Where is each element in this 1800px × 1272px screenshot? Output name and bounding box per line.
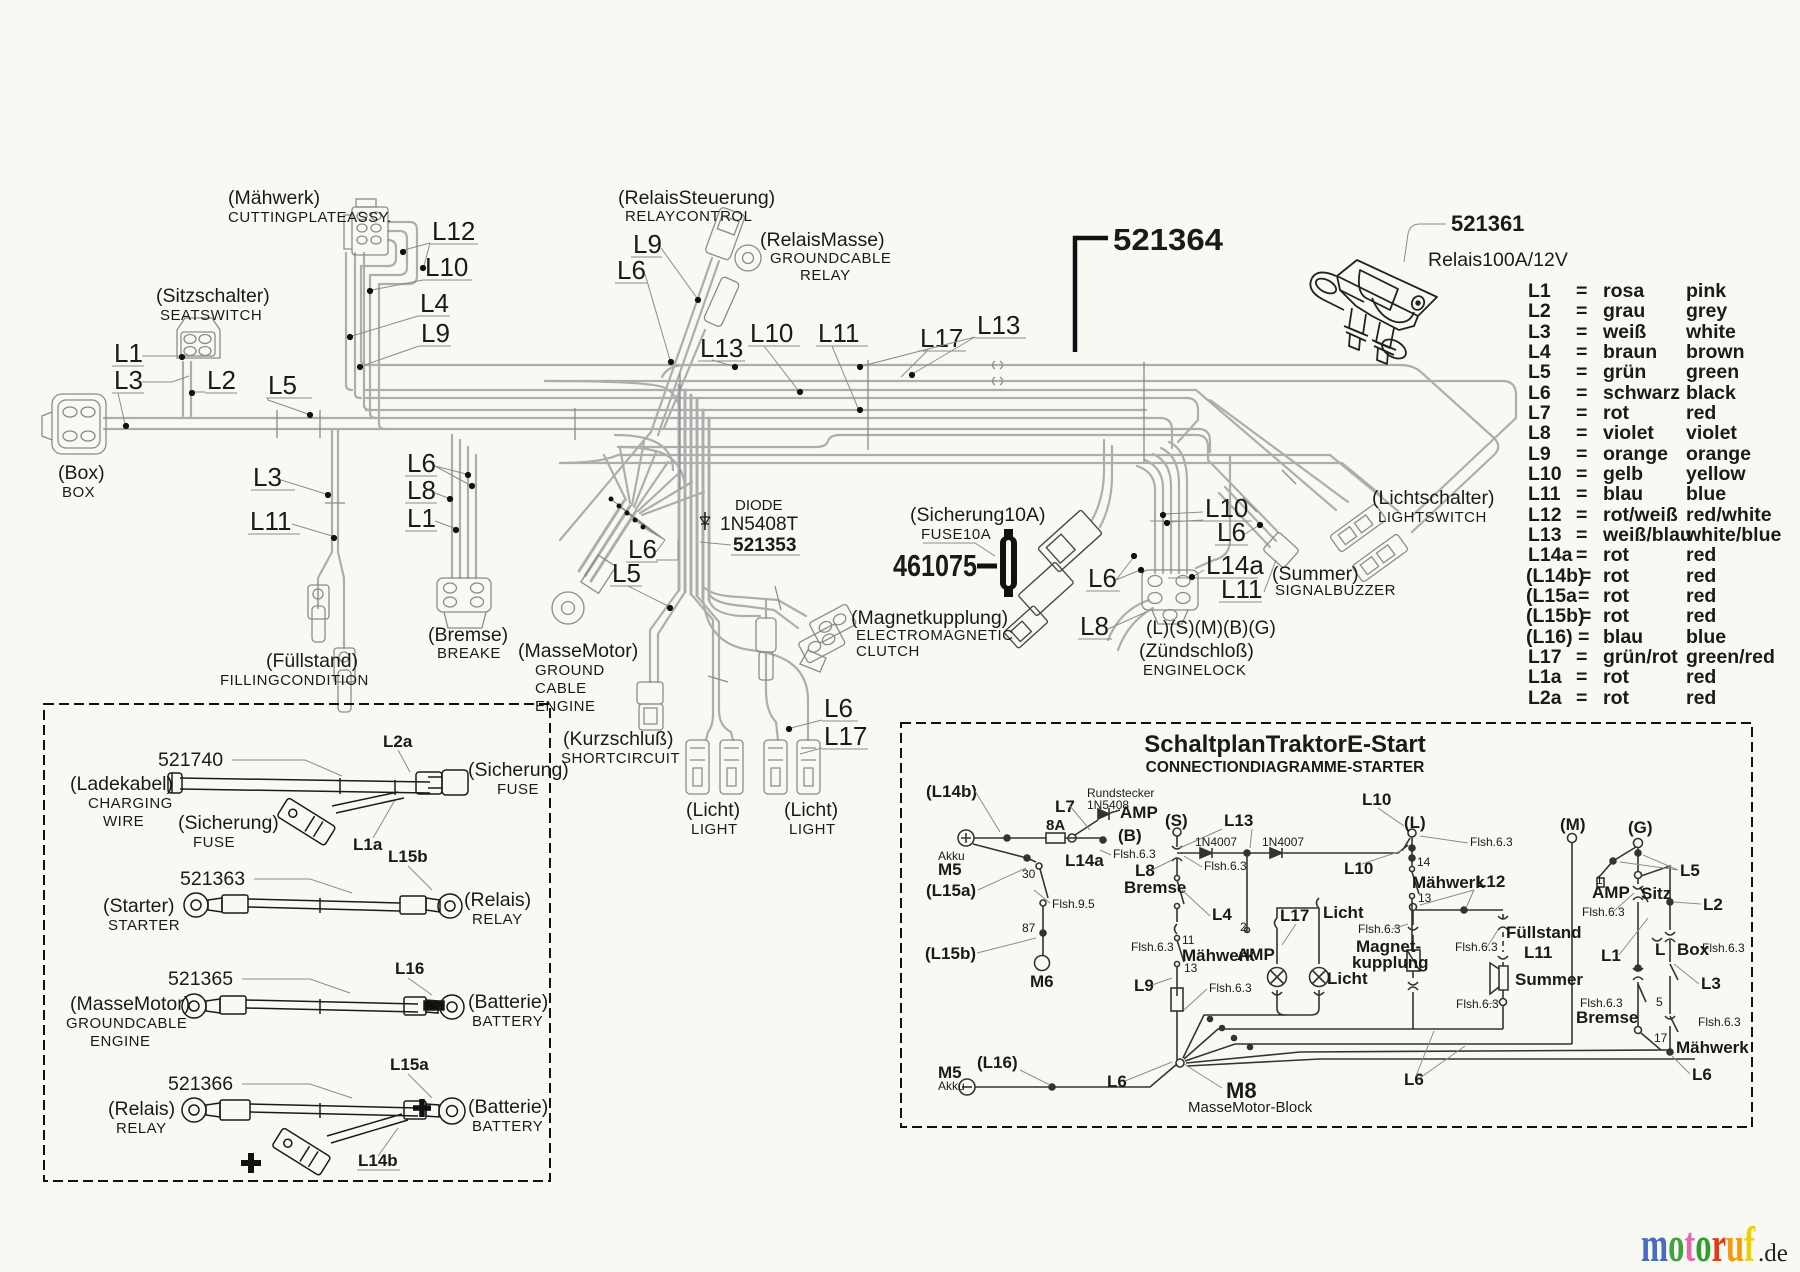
- svg-text:=: =: [1576, 300, 1587, 322]
- svg-text:(L16): (L16): [977, 1053, 1018, 1072]
- svg-text:L10: L10: [1362, 790, 1391, 809]
- svg-text:L6: L6: [1107, 1072, 1127, 1091]
- svg-text:521366: 521366: [168, 1073, 233, 1095]
- svg-text:red: red: [1686, 402, 1716, 424]
- svg-text:L11: L11: [1524, 943, 1552, 962]
- svg-text:blue: blue: [1686, 483, 1726, 505]
- svg-text:SEATSWITCH: SEATSWITCH: [160, 307, 262, 324]
- svg-text:L17: L17: [1528, 646, 1562, 668]
- svg-text:red: red: [1686, 585, 1716, 607]
- svg-text:L2: L2: [207, 365, 236, 395]
- svg-text:(L15a): (L15a): [926, 881, 976, 900]
- svg-text:(Licht): (Licht): [686, 799, 740, 821]
- svg-text:(L14b): (L14b): [926, 782, 977, 801]
- svg-text:=: =: [1576, 544, 1587, 566]
- svg-text:L11: L11: [1528, 483, 1561, 505]
- svg-text:L6: L6: [1088, 563, 1117, 593]
- svg-text:L2a: L2a: [1528, 687, 1562, 709]
- svg-text:FUSE: FUSE: [193, 834, 235, 851]
- svg-text:461075: 461075: [893, 548, 977, 583]
- svg-text:Flsh.6.3: Flsh.6.3: [1456, 997, 1499, 1011]
- svg-text:L12: L12: [1476, 872, 1505, 891]
- svg-text:L17: L17: [824, 721, 867, 751]
- svg-text:(RelaisSteuerung): (RelaisSteuerung): [618, 187, 775, 209]
- svg-text:orange: orange: [1686, 443, 1751, 465]
- svg-text:L10: L10: [750, 318, 793, 348]
- svg-text:(L)(S)(M)(B)(G): (L)(S)(M)(B)(G): [1146, 618, 1276, 639]
- svg-text:grün: grün: [1603, 361, 1646, 383]
- svg-text:rosa: rosa: [1603, 280, 1644, 302]
- svg-text:white/blue: white/blue: [1685, 524, 1781, 546]
- svg-text:13: 13: [1418, 891, 1432, 905]
- svg-text:CLUTCH: CLUTCH: [856, 643, 920, 660]
- svg-text:(L15b): (L15b): [1526, 605, 1585, 627]
- svg-text:Summer: Summer: [1515, 970, 1583, 989]
- svg-text:L2a: L2a: [383, 732, 413, 751]
- svg-text:rot: rot: [1603, 565, 1630, 587]
- svg-text:red: red: [1686, 605, 1716, 627]
- svg-text:violet: violet: [1603, 422, 1654, 444]
- svg-text:rot: rot: [1603, 544, 1630, 566]
- svg-text:Relais100A/12V: Relais100A/12V: [1428, 249, 1568, 271]
- svg-text:(Mähwerk): (Mähwerk): [228, 187, 320, 209]
- svg-text:grün/rot: grün/rot: [1603, 646, 1678, 668]
- svg-text:kupplung: kupplung: [1352, 953, 1428, 972]
- svg-text:rot: rot: [1603, 605, 1630, 627]
- svg-text:L14a: L14a: [1528, 544, 1573, 566]
- svg-text:L4: L4: [1528, 341, 1551, 363]
- svg-text:L17: L17: [920, 323, 963, 353]
- svg-text:rot: rot: [1603, 585, 1630, 607]
- svg-text:L: L: [1655, 940, 1665, 959]
- svg-text:Mähwerk: Mähwerk: [1412, 873, 1485, 892]
- svg-text:yellow: yellow: [1686, 463, 1746, 485]
- svg-text:(Sicherung10A): (Sicherung10A): [910, 504, 1046, 526]
- svg-text:Flsh.6.3: Flsh.6.3: [1131, 940, 1174, 954]
- svg-text:ENGINE: ENGINE: [90, 1033, 151, 1050]
- svg-text:blau: blau: [1603, 626, 1643, 648]
- svg-text:L2: L2: [1703, 895, 1723, 914]
- svg-text:grau: grau: [1603, 300, 1645, 322]
- svg-text:=: =: [1576, 687, 1587, 709]
- svg-text:red: red: [1686, 687, 1716, 709]
- svg-text:30: 30: [1022, 867, 1036, 881]
- svg-text:=: =: [1576, 443, 1587, 465]
- svg-text:red: red: [1686, 565, 1716, 587]
- svg-text:L1: L1: [1601, 946, 1621, 965]
- svg-text:SchaltplanTraktorE-Start: SchaltplanTraktorE-Start: [1144, 731, 1425, 758]
- svg-text:rot: rot: [1603, 402, 1630, 424]
- svg-text:WIRE: WIRE: [103, 813, 144, 830]
- svg-text:L9: L9: [421, 318, 450, 348]
- svg-text:GROUNDCABLE: GROUNDCABLE: [770, 250, 891, 267]
- svg-text:.de: .de: [1758, 1240, 1788, 1267]
- svg-text:L11: L11: [250, 506, 291, 536]
- svg-text:FUSE: FUSE: [497, 781, 539, 798]
- svg-text:LIGHT: LIGHT: [789, 821, 836, 838]
- svg-text:=: =: [1576, 280, 1587, 302]
- svg-text:Sitz: Sitz: [1641, 884, 1671, 903]
- svg-text:87: 87: [1022, 921, 1036, 935]
- svg-text:=: =: [1576, 646, 1587, 668]
- svg-text:(Box): (Box): [58, 462, 105, 484]
- svg-text:(Relais): (Relais): [464, 889, 531, 911]
- svg-text:(MasseMotor): (MasseMotor): [70, 993, 190, 1015]
- svg-text:11: 11: [1182, 933, 1195, 947]
- svg-text:2: 2: [1240, 920, 1247, 934]
- svg-text:motoruf: motoruf: [1641, 1216, 1756, 1272]
- svg-text:L3: L3: [114, 365, 143, 395]
- svg-text:brown: brown: [1686, 341, 1745, 363]
- svg-text:=: =: [1576, 341, 1587, 363]
- svg-text:(Ladekabel): (Ladekabel): [70, 773, 173, 795]
- svg-text:ENGINELOCK: ENGINELOCK: [1143, 662, 1246, 679]
- svg-text:LIGHTSWITCH: LIGHTSWITCH: [1378, 509, 1487, 526]
- svg-text:red: red: [1686, 544, 1716, 566]
- svg-text:Licht: Licht: [1323, 903, 1364, 922]
- svg-text:Flsh.6.3: Flsh.6.3: [1113, 847, 1156, 861]
- svg-text:white: white: [1685, 321, 1736, 343]
- svg-text:M5: M5: [938, 860, 962, 879]
- svg-text:L1: L1: [407, 503, 436, 533]
- svg-text:=: =: [1576, 483, 1587, 505]
- svg-text:CHARGING: CHARGING: [88, 795, 173, 812]
- svg-text:521364: 521364: [1113, 222, 1224, 257]
- svg-text:(Lichtschalter): (Lichtschalter): [1372, 487, 1494, 509]
- svg-text:(L16) =: (L16) =: [1526, 626, 1589, 648]
- svg-text:L11: L11: [1221, 574, 1262, 604]
- svg-text:L16: L16: [395, 959, 424, 978]
- svg-text:L2: L2: [1528, 300, 1551, 322]
- svg-text:orange: orange: [1603, 443, 1668, 465]
- svg-text:Flsh.6.3: Flsh.6.3: [1698, 1015, 1741, 1029]
- svg-text:schwarz: schwarz: [1603, 382, 1680, 404]
- svg-text:violet: violet: [1686, 422, 1737, 444]
- svg-text:(G): (G): [1628, 818, 1653, 837]
- svg-text:L6: L6: [1528, 382, 1551, 404]
- svg-text:521361: 521361: [1451, 211, 1524, 236]
- svg-text:FILLINGCONDITION: FILLINGCONDITION: [220, 672, 369, 689]
- svg-text:rot: rot: [1603, 666, 1630, 688]
- svg-text:L8: L8: [1080, 611, 1109, 641]
- svg-text:L12: L12: [432, 216, 475, 246]
- svg-text:Bremse: Bremse: [1124, 878, 1186, 897]
- svg-text:(L15a: (L15a: [1526, 585, 1577, 607]
- svg-text:L8: L8: [1528, 422, 1551, 444]
- svg-text:Füllstand: Füllstand: [1506, 923, 1582, 942]
- svg-text:BREAKE: BREAKE: [437, 645, 501, 662]
- svg-text:CUTTINGPLATEASSY.: CUTTINGPLATEASSY.: [228, 209, 392, 226]
- svg-text:L5: L5: [268, 370, 297, 400]
- svg-text:RELAYCONTROL: RELAYCONTROL: [625, 208, 752, 225]
- svg-text:L5: L5: [612, 558, 641, 588]
- svg-text:green/red: green/red: [1686, 646, 1775, 668]
- svg-text:(Sicherung): (Sicherung): [178, 812, 279, 834]
- svg-text:L14b: L14b: [358, 1151, 398, 1170]
- svg-text:green: green: [1686, 361, 1739, 383]
- svg-text:Bremse: Bremse: [1576, 1008, 1638, 1027]
- svg-text:SHORTCIRCUIT: SHORTCIRCUIT: [561, 750, 680, 767]
- svg-text:=: =: [1580, 565, 1591, 587]
- svg-text:BATTERY: BATTERY: [472, 1013, 543, 1030]
- svg-text:(L): (L): [1404, 813, 1426, 832]
- svg-text:L6: L6: [1692, 1065, 1712, 1084]
- svg-text:14: 14: [1417, 855, 1431, 869]
- svg-text:L9: L9: [1528, 443, 1551, 465]
- svg-text:STARTER: STARTER: [108, 917, 180, 934]
- svg-text:L6: L6: [824, 693, 853, 723]
- svg-text:Flsh.9.5: Flsh.9.5: [1052, 897, 1095, 911]
- svg-text:(L15b): (L15b): [925, 944, 976, 963]
- svg-text:L13: L13: [700, 333, 743, 363]
- svg-text:(Licht): (Licht): [784, 799, 838, 821]
- svg-text:CABLE: CABLE: [535, 680, 587, 697]
- svg-text:=: =: [1576, 504, 1587, 526]
- svg-text:(Magnetkupplung): (Magnetkupplung): [851, 607, 1008, 629]
- svg-text:(Bremse): (Bremse): [428, 624, 508, 646]
- svg-text:AMP: AMP: [1120, 803, 1158, 822]
- svg-text:L6: L6: [1404, 1070, 1424, 1089]
- svg-text:blau: blau: [1603, 483, 1643, 505]
- svg-text:FUSE10A: FUSE10A: [921, 526, 991, 543]
- svg-text:red: red: [1686, 666, 1716, 688]
- svg-text:Flsh.6.3: Flsh.6.3: [1204, 859, 1247, 873]
- svg-text:L14a: L14a: [1065, 851, 1104, 870]
- svg-text:=: =: [1576, 422, 1587, 444]
- svg-text:grey: grey: [1686, 300, 1727, 322]
- svg-text:L3: L3: [253, 462, 282, 492]
- svg-text:L13: L13: [1224, 811, 1253, 830]
- svg-text:RELAY: RELAY: [116, 1120, 167, 1137]
- svg-text:L1a: L1a: [353, 835, 383, 854]
- svg-text:L15b: L15b: [388, 847, 428, 866]
- svg-text:GROUND: GROUND: [535, 662, 605, 679]
- svg-text:DIODE: DIODE: [735, 497, 783, 514]
- svg-text:(RelaisMasse): (RelaisMasse): [760, 229, 885, 251]
- svg-text:L1: L1: [114, 338, 143, 368]
- svg-text:BOX: BOX: [62, 484, 95, 501]
- svg-text:black: black: [1686, 382, 1736, 404]
- svg-text:ELECTROMAGNETIC: ELECTROMAGNETIC: [856, 627, 1014, 644]
- svg-text:(Füllstand): (Füllstand): [266, 650, 358, 672]
- svg-text:L13: L13: [977, 310, 1020, 340]
- svg-text:SIGNALBUZZER: SIGNALBUZZER: [1275, 582, 1396, 599]
- svg-text:521365: 521365: [168, 968, 233, 990]
- svg-text:RELAY: RELAY: [472, 911, 523, 928]
- svg-text:17: 17: [1654, 1031, 1668, 1045]
- svg-text:L4: L4: [420, 288, 449, 318]
- svg-text:Flsh.6.3: Flsh.6.3: [1470, 835, 1513, 849]
- svg-text:Flsh.6.3: Flsh.6.3: [1358, 922, 1401, 936]
- svg-text:(S): (S): [1165, 811, 1188, 830]
- svg-text:GROUNDCABLE: GROUNDCABLE: [66, 1015, 187, 1032]
- svg-text:L6: L6: [617, 255, 646, 285]
- svg-text:(Zündschloß): (Zündschloß): [1139, 640, 1254, 662]
- svg-text:L13: L13: [1528, 524, 1562, 546]
- svg-text:L1: L1: [1528, 280, 1551, 302]
- svg-text:blue: blue: [1686, 626, 1726, 648]
- svg-text:=: =: [1576, 361, 1587, 383]
- svg-text:Flsh.6.3: Flsh.6.3: [1455, 940, 1498, 954]
- svg-text:L9: L9: [1134, 976, 1154, 995]
- svg-text:=: =: [1576, 666, 1587, 688]
- svg-text:521363: 521363: [180, 868, 245, 890]
- svg-text:L10: L10: [425, 252, 468, 282]
- svg-text:L8: L8: [407, 475, 436, 505]
- svg-text:L15a: L15a: [390, 1055, 429, 1074]
- svg-text:L6: L6: [407, 448, 436, 478]
- svg-text:5: 5: [1656, 995, 1663, 1009]
- svg-text:rot/weiß: rot/weiß: [1603, 504, 1678, 526]
- svg-text:=: =: [1580, 605, 1591, 627]
- svg-text:rot: rot: [1603, 687, 1630, 709]
- svg-text:L17: L17: [1280, 906, 1309, 925]
- svg-text:=: =: [1576, 402, 1587, 424]
- svg-text:L4: L4: [1212, 905, 1232, 924]
- svg-text:Flsh.6.3: Flsh.6.3: [1702, 941, 1745, 955]
- svg-text:L1a: L1a: [1528, 666, 1562, 688]
- svg-text:RELAY: RELAY: [800, 267, 851, 284]
- svg-text:Flsh.6.3: Flsh.6.3: [1209, 981, 1252, 995]
- svg-text:1N4007: 1N4007: [1262, 835, 1304, 849]
- svg-text:L6: L6: [1217, 517, 1246, 547]
- svg-text:M6: M6: [1030, 972, 1054, 991]
- svg-text:(Starter): (Starter): [103, 895, 175, 917]
- svg-text:521740: 521740: [158, 749, 223, 771]
- svg-text:ENGINE: ENGINE: [535, 698, 596, 715]
- svg-text:LIGHT: LIGHT: [691, 821, 738, 838]
- svg-text:L7: L7: [1055, 797, 1075, 816]
- svg-text:(Batterie): (Batterie): [468, 1096, 548, 1118]
- svg-text:=: =: [1578, 585, 1589, 607]
- svg-text:13: 13: [1184, 961, 1198, 975]
- svg-text:=: =: [1576, 321, 1587, 343]
- svg-text:1N5408T: 1N5408T: [720, 514, 799, 535]
- svg-text:L12: L12: [1528, 504, 1562, 526]
- svg-text:AMP: AMP: [1592, 883, 1630, 902]
- svg-text:L5: L5: [1528, 361, 1551, 383]
- svg-text:(M): (M): [1560, 815, 1585, 834]
- svg-text:weiß: weiß: [1602, 321, 1646, 343]
- svg-text:BATTERY: BATTERY: [472, 1118, 543, 1135]
- svg-text:8A: 8A: [1046, 817, 1065, 834]
- svg-text:gelb: gelb: [1603, 463, 1643, 485]
- svg-text:=: =: [1576, 524, 1587, 546]
- svg-text:(Relais): (Relais): [108, 1098, 175, 1120]
- svg-text:(B): (B): [1118, 826, 1142, 845]
- svg-text:(Sitzschalter): (Sitzschalter): [156, 285, 270, 307]
- svg-text:Mähwerk: Mähwerk: [1676, 1038, 1749, 1057]
- svg-text:L10: L10: [1528, 463, 1562, 485]
- svg-text:red/white: red/white: [1686, 504, 1772, 526]
- svg-text:braun: braun: [1603, 341, 1657, 363]
- svg-text:(MasseMotor): (MasseMotor): [518, 640, 638, 662]
- svg-text:(Sicherung): (Sicherung): [468, 759, 569, 781]
- svg-text:L5: L5: [1680, 861, 1700, 880]
- svg-text:CONNECTIONDIAGRAMME-STARTER: CONNECTIONDIAGRAMME-STARTER: [1146, 759, 1425, 776]
- svg-text:pink: pink: [1686, 280, 1726, 302]
- svg-text:1N4007: 1N4007: [1195, 835, 1237, 849]
- svg-text:(Batterie): (Batterie): [468, 991, 548, 1013]
- svg-text:Akku: Akku: [938, 1079, 965, 1093]
- svg-text:(Kurzschluß): (Kurzschluß): [563, 728, 674, 750]
- svg-text:MasseMotor-Block: MasseMotor-Block: [1188, 1099, 1313, 1116]
- svg-text:521353: 521353: [733, 535, 796, 556]
- svg-text:=: =: [1576, 382, 1587, 404]
- svg-text:L11: L11: [818, 318, 859, 348]
- svg-text:(L14b): (L14b): [1526, 565, 1585, 587]
- svg-text:L3: L3: [1528, 321, 1551, 343]
- svg-text:weiß/blau: weiß/blau: [1602, 524, 1692, 546]
- svg-text:AMP: AMP: [1237, 945, 1275, 964]
- svg-text:L3: L3: [1701, 974, 1721, 993]
- svg-text:=: =: [1576, 463, 1587, 485]
- svg-text:L7: L7: [1528, 402, 1551, 424]
